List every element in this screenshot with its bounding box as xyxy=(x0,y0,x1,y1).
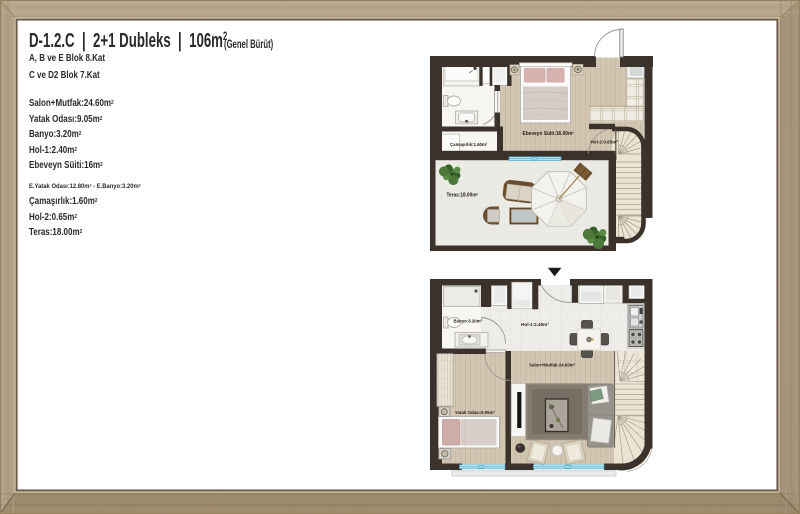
svg-text:Çamaşırlık:1.60m²: Çamaşırlık:1.60m² xyxy=(450,142,488,147)
svg-text:Salon+Mutfak:24.60m²: Salon+Mutfak:24.60m² xyxy=(529,362,576,367)
svg-text:Banyo:3.20m²: Banyo:3.20m² xyxy=(454,318,483,323)
svg-text:Ebeveyn Süiti:16.00m²: Ebeveyn Süiti:16.00m² xyxy=(523,131,575,137)
svg-text:Teras:18.00m²: Teras:18.00m² xyxy=(447,192,479,198)
svg-text:Hol-1:2.40m²: Hol-1:2.40m² xyxy=(521,322,549,328)
svg-text:Hol-2:0.65m²: Hol-2:0.65m² xyxy=(591,139,619,144)
svg-text:Yatak Odası:9.05m²: Yatak Odası:9.05m² xyxy=(455,410,495,415)
